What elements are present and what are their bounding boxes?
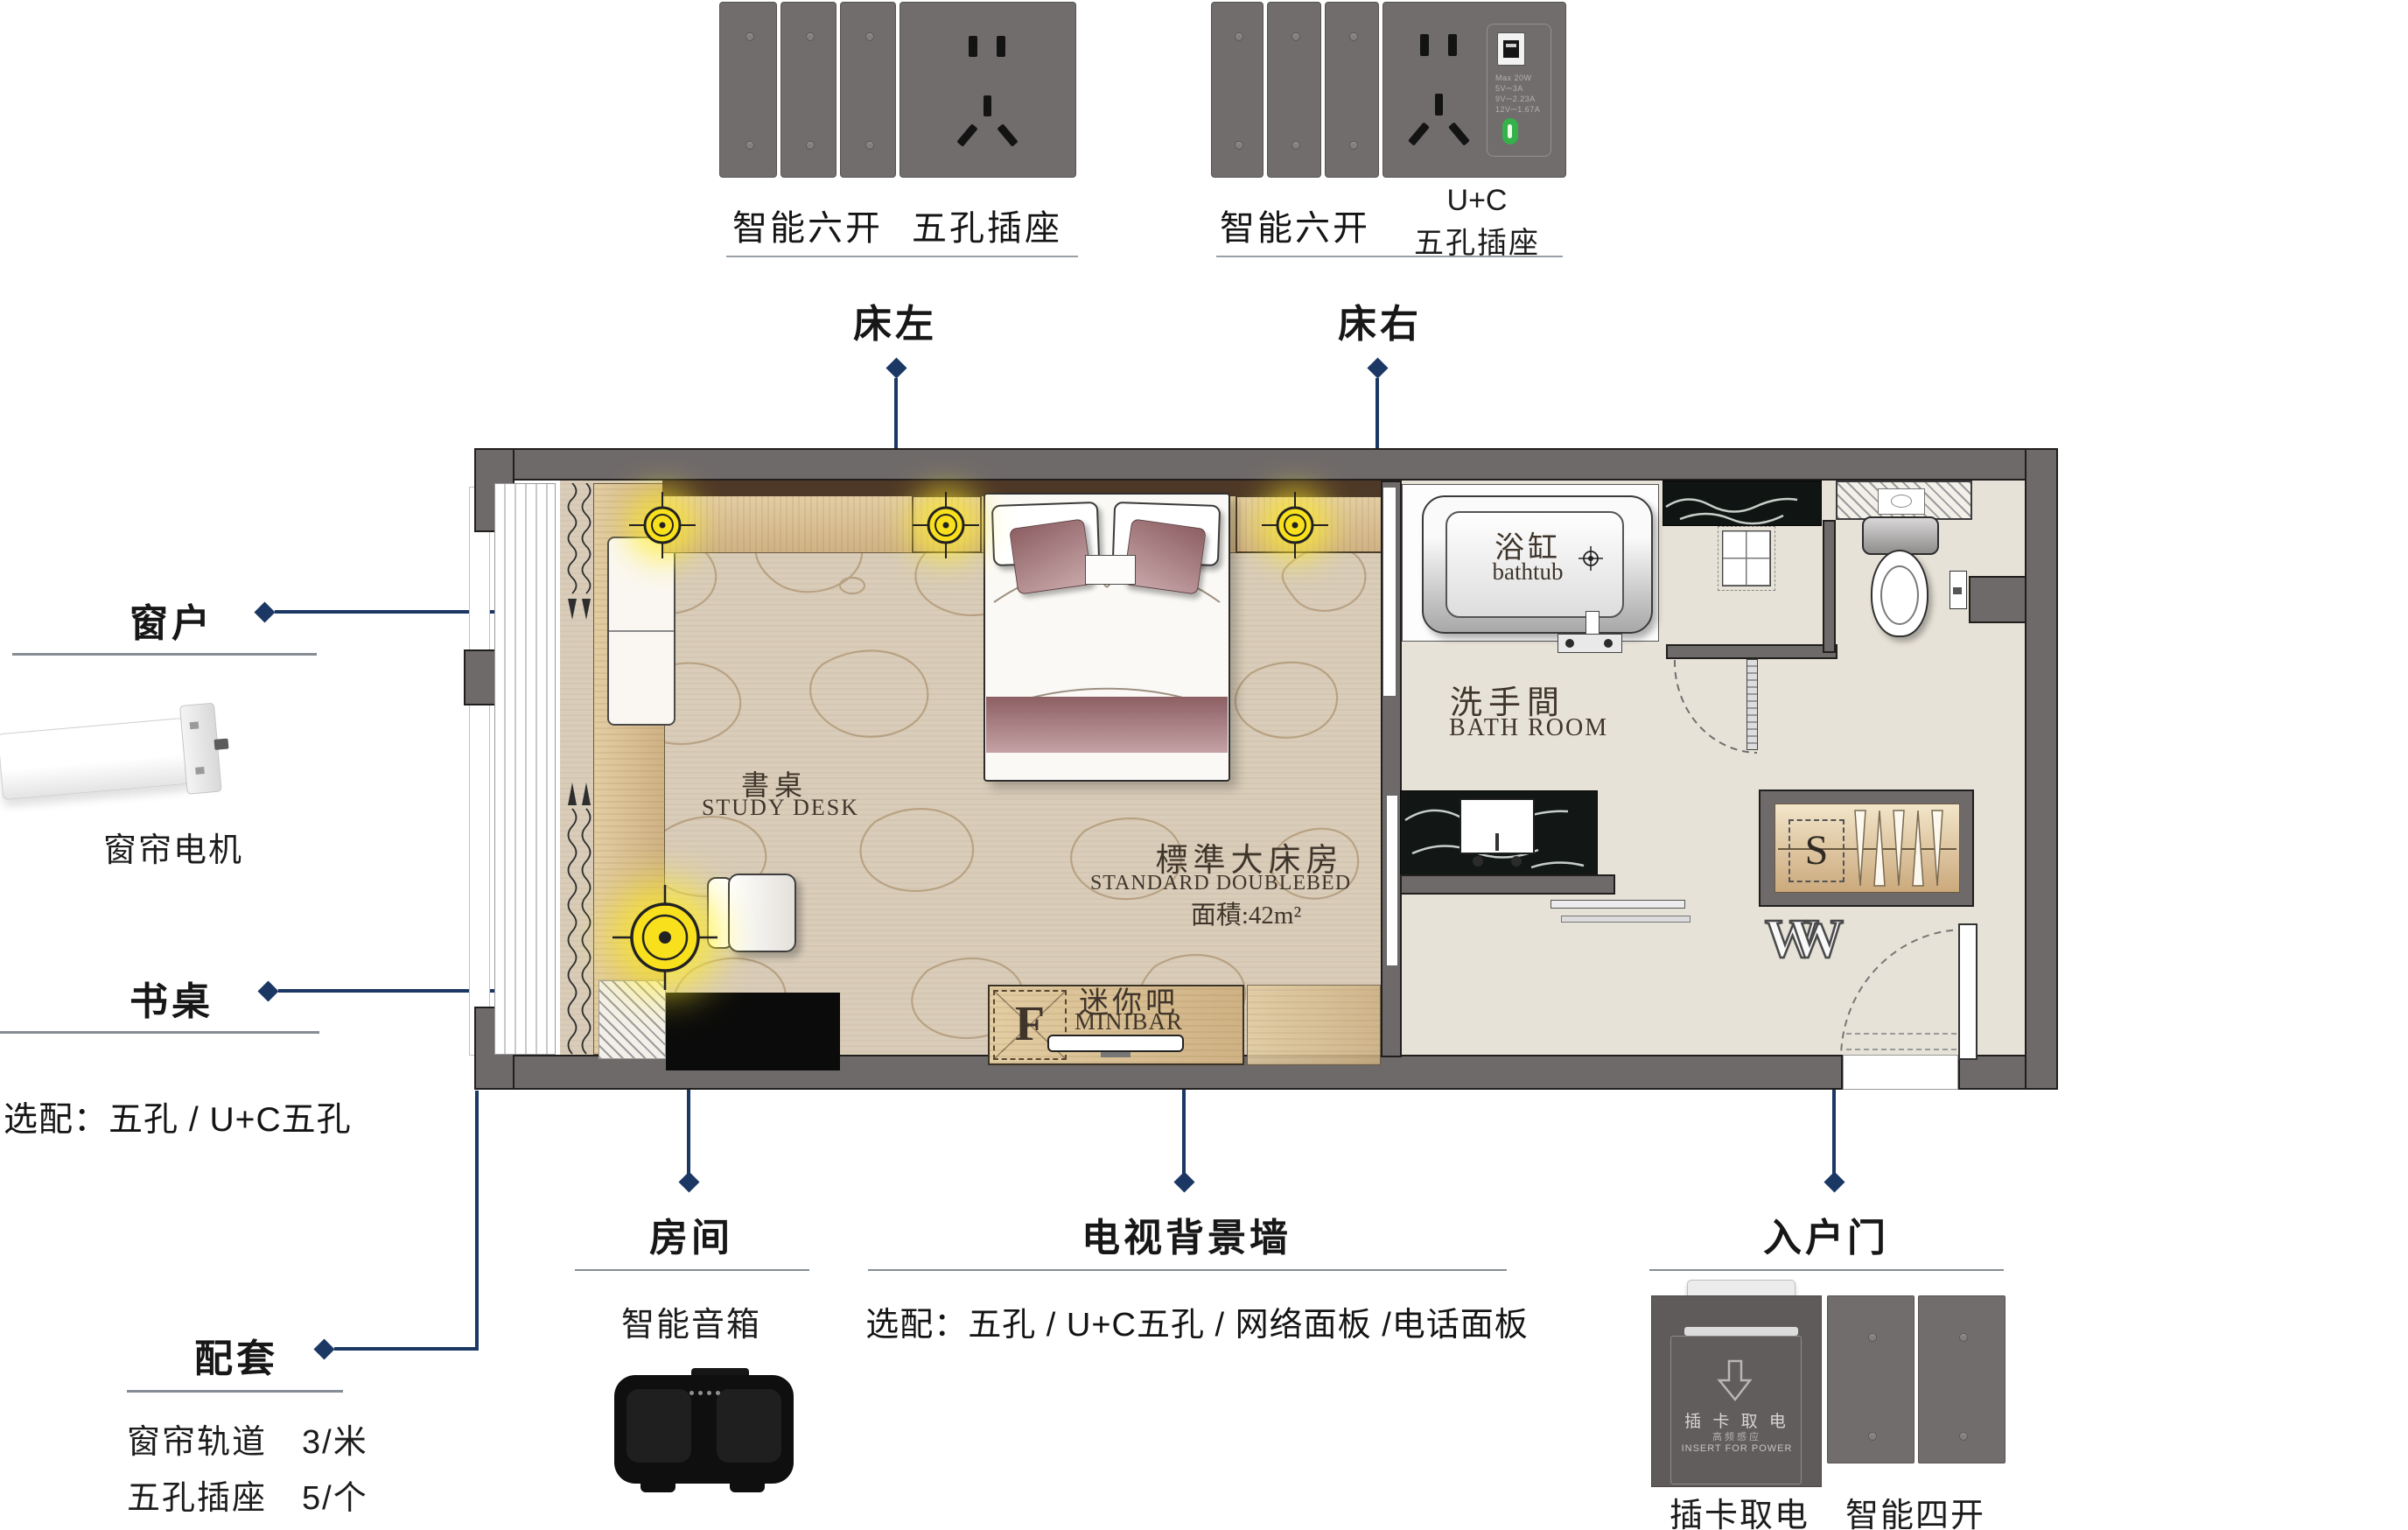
smart-switch-gang-icon bbox=[1267, 2, 1321, 178]
bed-runner bbox=[986, 697, 1228, 753]
smart-switch-gang-icon bbox=[1211, 2, 1263, 178]
bathroom-label-en: BATH ROOM bbox=[1449, 714, 1608, 742]
curtain-motor-image bbox=[0, 695, 232, 824]
towel-bar bbox=[1550, 900, 1685, 909]
entry-door-swing-arc bbox=[1837, 926, 1969, 1059]
wardrobe-mark: W bbox=[1789, 909, 1844, 971]
shower-door-swing-arc bbox=[1669, 656, 1760, 758]
divider bbox=[1216, 256, 1563, 257]
window bbox=[494, 483, 556, 1055]
diamond-marker bbox=[678, 1171, 699, 1192]
sliding-door-panel bbox=[1382, 487, 1396, 697]
ceiling-light-icon bbox=[1262, 492, 1328, 558]
curtain-motor-label: 窗帘电机 bbox=[103, 823, 243, 871]
five-hole-socket-icon bbox=[899, 2, 1076, 178]
curtain-symbol-bottom bbox=[562, 770, 597, 1057]
hotel-room-plan-infographic: 智能六开 五孔插座 床左 Max 20W 5V⎓3A bbox=[0, 0, 2408, 1530]
usb-c-port-icon bbox=[1502, 118, 1518, 144]
smart-switch-gang-icon bbox=[1827, 1295, 1914, 1463]
bundle-item: 窗帘轨道 3/米 bbox=[127, 1414, 368, 1463]
study-desk-label-en: STUDY DESK bbox=[702, 795, 859, 821]
divider bbox=[726, 256, 1078, 257]
desk-black-cabinet bbox=[666, 993, 840, 1070]
divider bbox=[575, 1269, 809, 1271]
speaker-label: 智能音箱 bbox=[621, 1297, 761, 1345]
diamond-marker bbox=[257, 980, 278, 1001]
ceiling-light-icon-large bbox=[612, 885, 717, 990]
diamond-marker bbox=[1823, 1171, 1844, 1192]
vanity-ledge-wall bbox=[1400, 874, 1615, 895]
ceiling-light-icon bbox=[913, 492, 979, 558]
smart-speaker-image bbox=[614, 1368, 794, 1495]
bench-cushions bbox=[607, 537, 675, 726]
callout-tv-wall: 电视背景墙 bbox=[1081, 1206, 1291, 1262]
curtain-symbol-top bbox=[562, 483, 597, 632]
window-outer-ledge bbox=[469, 487, 490, 1056]
bed-center-tray bbox=[1085, 555, 1136, 585]
ceiling-light-icon bbox=[629, 492, 696, 558]
door-threshold-dashes bbox=[1846, 1033, 1956, 1035]
socket-label: 五孔插座 bbox=[912, 200, 1062, 250]
wall-right-pier bbox=[1969, 576, 2026, 623]
divider bbox=[127, 1390, 343, 1393]
tv-wall-option-note: 选配：五孔 / U+C五孔 / 网络面板 /电话面板 bbox=[865, 1297, 1529, 1345]
diamond-marker bbox=[313, 1338, 334, 1359]
desk-chair bbox=[707, 874, 798, 954]
towel-bar bbox=[1561, 916, 1690, 923]
desk-option-note: 选配：五孔 / U+C五孔 bbox=[3, 1092, 352, 1141]
floor-hatch-patch bbox=[598, 980, 666, 1059]
vanity-faucet-dots bbox=[1473, 856, 1525, 868]
diamond-marker bbox=[885, 357, 906, 378]
card-switch-sub: 高频感应 bbox=[1712, 1429, 1761, 1443]
callout-line bbox=[475, 1091, 479, 1351]
usb-a-port-icon bbox=[1497, 32, 1525, 66]
callout-bed-right: 床右 bbox=[1338, 292, 1422, 348]
entry-door-leaf bbox=[1958, 923, 1977, 1060]
toilet bbox=[1862, 516, 1939, 639]
smart-switch-gang-icon bbox=[1918, 1295, 2005, 1463]
callout-window: 窗户 bbox=[129, 592, 213, 648]
smart-switch-gang-icon bbox=[780, 2, 836, 178]
tv-stand bbox=[1101, 1052, 1130, 1057]
uc-five-hole-socket-icon: Max 20W 5V⎓3A 9V⎓2.23A 12V⎓1.67A bbox=[1382, 2, 1566, 178]
card-switch-panel: 插 卡 取 电 高频感应 INSERT FOR POWER bbox=[1651, 1295, 1822, 1487]
diamond-marker bbox=[254, 601, 275, 622]
sliding-door-panel bbox=[1386, 795, 1398, 966]
usb-spec-text: Max 20W 5V⎓3A 9V⎓2.23A 12V⎓1.67A bbox=[1495, 73, 1540, 115]
card-power-label: 插卡取电 bbox=[1669, 1488, 1809, 1530]
switch-label: 智能六开 bbox=[732, 200, 883, 250]
divider bbox=[12, 653, 317, 656]
shower-drain-tile bbox=[1722, 530, 1771, 586]
insert-arrow-icon bbox=[1713, 1358, 1757, 1403]
card-switch-zh: 插 卡 取 电 bbox=[1684, 1408, 1789, 1432]
diamond-marker bbox=[1367, 357, 1388, 378]
tv-console-right bbox=[1247, 985, 1381, 1065]
bathtub-label-en: bathtub bbox=[1493, 558, 1564, 586]
wall-top bbox=[474, 448, 2058, 481]
vanity-sink bbox=[1459, 798, 1535, 854]
diamond-marker bbox=[1173, 1171, 1194, 1192]
callout-desk: 书桌 bbox=[129, 970, 213, 1026]
smart-four-gang-label: 智能四开 bbox=[1845, 1488, 1985, 1530]
flush-plate bbox=[1878, 488, 1925, 515]
door-threshold-dashes bbox=[1846, 1049, 1956, 1050]
minibar-label-en: MINIBAR bbox=[1074, 1008, 1183, 1035]
callout-bundle: 配套 bbox=[194, 1327, 278, 1383]
callout-bed-left: 床左 bbox=[853, 292, 937, 348]
divider bbox=[1649, 1269, 2004, 1271]
callout-room: 房间 bbox=[649, 1206, 733, 1262]
smart-switch-gang-icon bbox=[1325, 2, 1379, 178]
callout-line bbox=[334, 1347, 479, 1351]
tv-icon bbox=[1047, 1035, 1184, 1052]
divider bbox=[0, 1031, 319, 1034]
marble-counter-top bbox=[1662, 481, 1822, 526]
callout-entry-door: 入户门 bbox=[1763, 1206, 1889, 1262]
socket-label-uc: U+C bbox=[1447, 184, 1508, 218]
wall-shower-toilet-divider bbox=[1823, 520, 1836, 653]
toilet-paper-holder bbox=[1949, 571, 1967, 609]
bundle-item: 五孔插座 5/个 bbox=[127, 1470, 368, 1519]
bathtub-controls bbox=[1557, 634, 1622, 653]
divider bbox=[868, 1269, 1507, 1271]
room-name-en: STANDARD DOUBLEBED bbox=[1090, 872, 1351, 895]
smart-switch-gang-icon bbox=[719, 2, 777, 178]
drain-icon bbox=[1578, 546, 1603, 571]
room-area: 面積:42m² bbox=[1191, 895, 1301, 931]
smart-switch-gang-icon bbox=[840, 2, 896, 178]
speaker-control-icons bbox=[689, 1391, 719, 1398]
fridge-mark: F bbox=[1015, 996, 1045, 1052]
switch-label: 智能六开 bbox=[1220, 200, 1370, 250]
card-switch-en: INSERT FOR POWER bbox=[1682, 1443, 1793, 1454]
accent-cushion bbox=[1009, 518, 1093, 594]
safe-mark: S bbox=[1805, 826, 1829, 874]
wall-right bbox=[2025, 448, 2058, 1090]
entry-door-sill bbox=[1843, 1055, 1958, 1090]
